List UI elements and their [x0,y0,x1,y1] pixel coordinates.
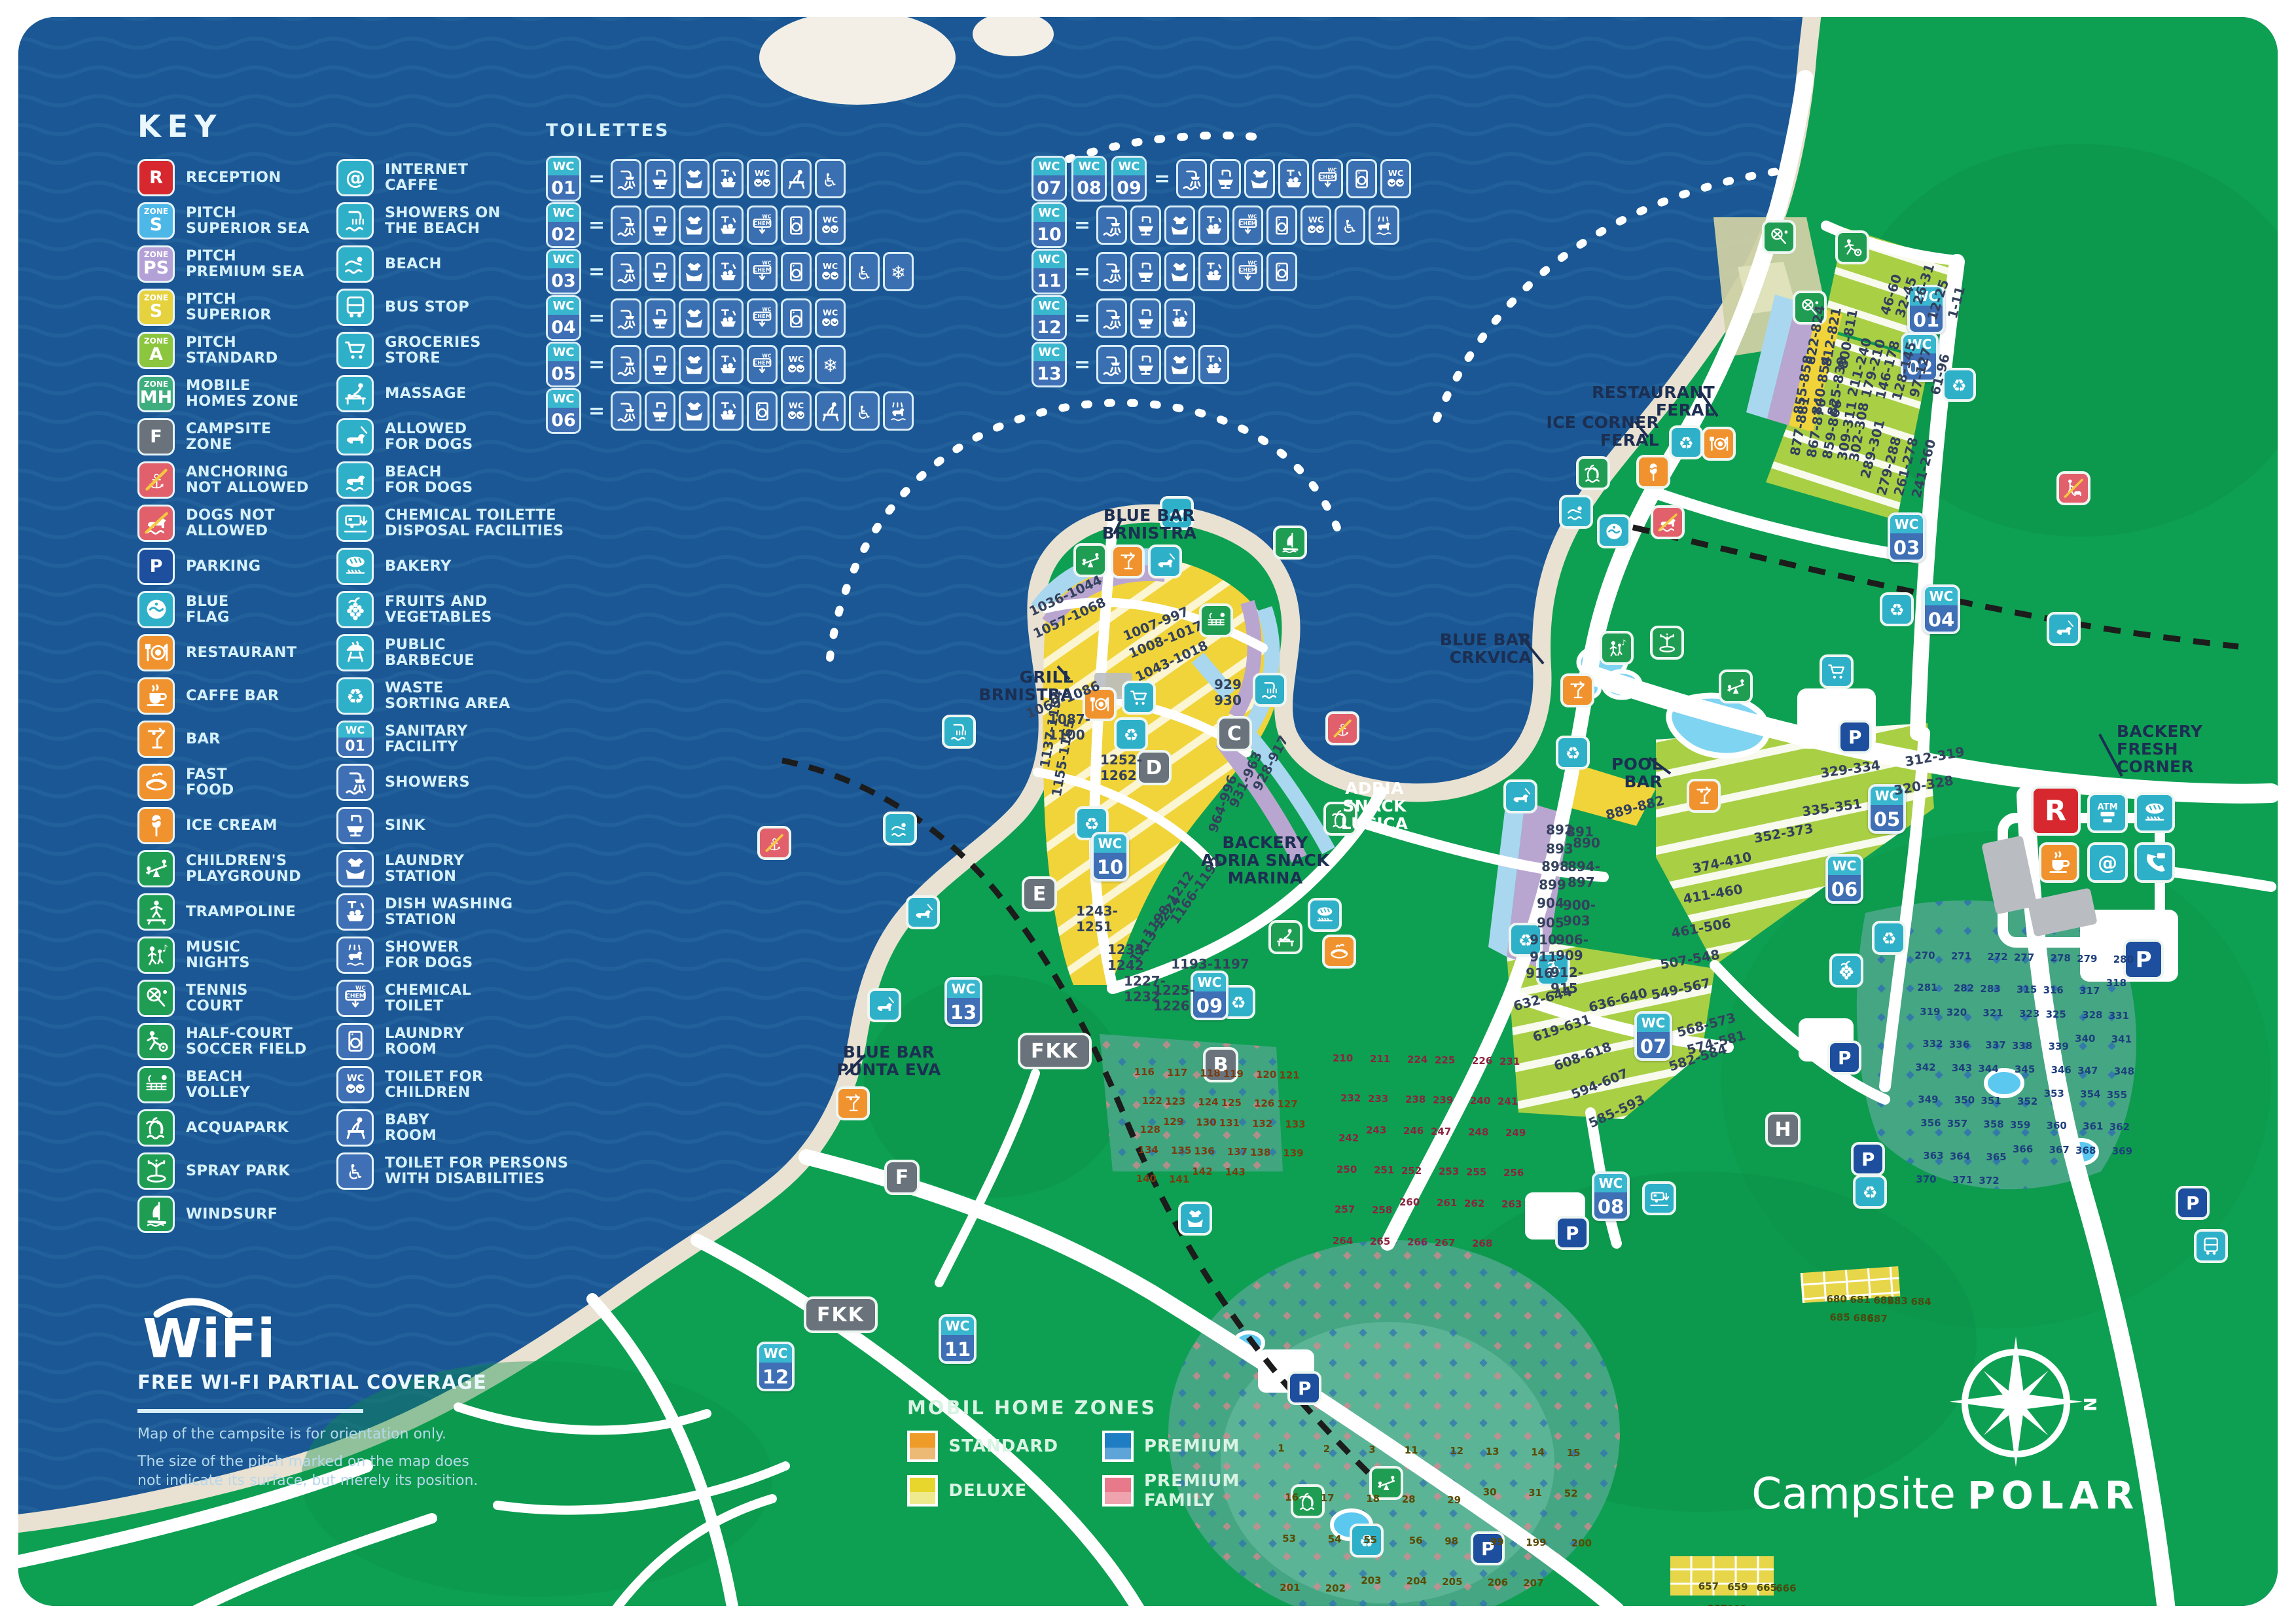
key-item: CHEMICALTOILET [336,976,568,1020]
key-zone-badge: ZONEA [137,332,175,369]
mh-pitch-number: 120 [1256,1069,1276,1080]
key-zone-badge: ZONEMH [137,375,175,412]
mh-legend-heading: MOBIL HOME ZONES [907,1397,1312,1419]
laundry-icon [1168,353,1192,377]
map-badge-ATM [2087,793,2128,833]
key-item: MASSAGE [336,372,568,415]
dog-icon [1154,550,1176,573]
mh-pitch-number: 323 [2019,1008,2039,1020]
fastfood-icon [1328,940,1350,963]
chem-icon [1236,213,1260,238]
facility-wckids [815,205,846,245]
mh-pitch-number: 321 [1982,1007,2003,1019]
key-item: RESTAURANT [137,631,310,674]
sink-icon [1134,306,1158,330]
chem-icon [1316,167,1340,191]
key-item-label: ANCHORINGNOT ALLOWED [186,464,309,496]
key-item-label: LAUNDRYSTATION [385,853,464,885]
chemdisposal-icon [1648,1187,1670,1209]
map-badge-volley [1199,603,1233,637]
mh-pitch-number: 320 [1946,1007,1967,1018]
mh-pitch-number: 262 [1464,1198,1484,1209]
map-area-label: POOLBAR [1611,755,1662,791]
sink-icon [648,167,672,191]
mh-pitch-number: 318 [2106,977,2126,989]
facility-dishwash [1198,345,1229,384]
mh-legend-item: PREMIUM FAMILY [1102,1471,1312,1510]
map-badge-bus [2194,1229,2228,1263]
key-item-label: BEACH [385,256,442,272]
key-item: CHEMICAL TOILETTEDISPOSAL FACILITIES [336,501,568,544]
toilettes-row: WC03= [546,249,917,294]
mh-pitch-number: 138 [1250,1147,1270,1158]
map-badge-cart [1820,654,1854,688]
mh-pitch-number: 346 [2051,1064,2072,1076]
mh-pitch-number: 352 [2017,1096,2037,1107]
shower-icon [614,353,638,377]
spray-icon [1656,632,1678,654]
P-icon [1561,1222,1583,1244]
laundry-icon [682,213,706,238]
laundry-icon [342,855,369,882]
toilettes-row: WC10= [1031,202,1403,248]
mh-pitch-number: 687 [1867,1313,1888,1325]
mh-pitch-number: 201 [1280,1582,1300,1594]
equals-sign: = [588,353,605,376]
facility-sink [645,345,675,384]
mh-pitch-number: 354 [2080,1088,2100,1100]
bakery-icon [2141,799,2168,827]
mh-pitch-number: 355 [2107,1089,2127,1101]
mh-pitch-number: 264 [1333,1235,1353,1247]
key-item: SPRAY PARK [137,1149,310,1192]
mh-pitch-number: 676 [1774,1605,1795,1606]
facility-laundry [1164,205,1195,245]
wckids-icon [750,167,774,191]
mh-pitch-number: 316 [2043,984,2064,996]
facility-wheelchair [1335,205,1365,245]
key-icon-box [336,1109,374,1147]
pitch-range-label: 1243-1251 [1076,903,1118,935]
facility-dogshower [883,391,914,431]
facility-shower [1096,345,1127,384]
shower-icon [1179,167,1204,191]
facility-snow [883,252,914,291]
chemdisposal-icon [342,509,369,537]
key-icon-box [137,893,175,931]
map-badge-acquapark [1576,456,1610,490]
mh-pitch-number: 683 [1888,1295,1908,1307]
massage-icon [342,380,369,407]
mh-pitch-number: 139 [1283,1147,1303,1159]
waste-icon [1081,812,1103,834]
key-item-label: BAR [186,731,221,747]
key-item: LAUNDRYSTATION [336,847,568,890]
key-icon-box [336,936,374,974]
map-wc-07: WC07 [1634,1011,1672,1061]
mh-pitch-number: 351 [1981,1095,2001,1107]
pitch-range-label: 352-373 [1753,820,1815,846]
equals-sign: = [588,307,605,330]
snow-icon [818,353,842,377]
P-icon [1857,1148,1879,1170]
key-item-label: CHEMICALTOILET [385,982,471,1014]
facility-sink [645,391,675,431]
facility-shower [611,252,641,291]
key-item-label: WASTESORTING AREA [385,680,511,712]
mh-pitch-number: 124 [1198,1096,1218,1108]
key-item: SHOWERS ONTHE BEACH [336,199,568,242]
key-item: ZONEPS PITCHPREMIUM SEA [137,242,310,285]
beachshower-icon [1259,679,1281,701]
waste-icon [1886,598,1908,620]
map-badge-P [1851,1142,1885,1176]
mh-pitch-number: 125 [1221,1097,1242,1109]
map-badge-beachshower [1253,673,1287,707]
mh-pitch-number: 336 [1949,1039,1969,1050]
key-item: BLUEFLAG [137,588,310,631]
map-badge-coffee [2039,842,2079,883]
wheelchair-icon [1338,213,1362,238]
mh-pitch-number: 319 [1920,1006,1940,1018]
mh-pitch-number: 243 [1366,1124,1386,1136]
map-badge-P [1827,1041,1861,1075]
equals-sign: = [1074,307,1090,330]
facility-dishwash [713,345,744,384]
shower-icon [1100,353,1124,377]
pitch-range-label: 899 [1539,877,1566,893]
facility-wckids [1380,159,1411,198]
facility-wheelchair [815,159,846,198]
pitch-range-label: 893 [1546,841,1573,857]
mh-pitch-number: 143 [1225,1166,1246,1178]
key-item-label: SHOWERFOR DOGS [385,939,473,971]
pitch-range-label: 900-903 [1563,897,1596,929]
key-zone-badge: ZONEPS [137,245,175,283]
washer-icon [1270,260,1294,284]
wc-09-badge: WC09 [1111,156,1147,202]
mh-pitch-number: 12 [1450,1445,1463,1457]
facility-chem [747,298,778,338]
key-icon-box [137,850,175,887]
key-item-label: BLUEFLAG [186,594,230,626]
wc-12-badge: WC12 [1031,295,1067,341]
wheelchair-icon [818,167,842,191]
mh-pitch-number: 258 [1372,1204,1392,1216]
title-polari: POLARI [1967,1473,2160,1518]
facility-shower [611,298,641,338]
key-item-label: SPRAY PARK [186,1163,290,1179]
key-item-label: PARKING [186,558,260,574]
mh-pitch-number: 340 [2075,1033,2095,1044]
key-item-label: RECEPTION [186,169,281,185]
mh-pitch-number: 357 [1947,1118,1967,1130]
facility-chem [1232,252,1263,291]
acquapark-icon [1582,462,1604,484]
key-item: PUBLICBARBECUE [336,631,568,674]
facility-snow [815,345,846,384]
equals-sign: = [1154,168,1170,190]
mh-pitch-number: 363 [1923,1150,1943,1162]
mh-pitch-number: 338 [2012,1040,2032,1052]
facility-dishwash [713,205,744,245]
map-badge-swimmer [1559,495,1593,529]
map-badge-bakery [2134,793,2175,833]
map-badge-waste [1556,736,1590,770]
P-icon [2130,946,2157,973]
key-item: R RECEPTION [137,156,310,199]
baby-icon [784,167,808,191]
mh-pitch-number: 681 [1850,1294,1871,1306]
map-badge-massage [1268,920,1302,954]
key-item: ZONEA PITCHSTANDARD [137,329,310,372]
facility-laundry [679,159,709,198]
facility-sink [645,205,675,245]
mh-pitch-number: 325 [2046,1008,2066,1020]
key-icon-box [336,245,374,283]
key-item-label: CAMPSITEZONE [186,421,272,453]
washer-icon [750,399,774,423]
P-icon [2181,1192,2204,1214]
map-badge-waste [1872,921,1906,955]
key-icon-box [137,764,175,801]
waste-icon [1878,927,1900,949]
campsite-map-poster: { "title": {"campsite": "Campsite", "nam… [0,0,2296,1623]
key-item-label: INTERNETCAFFE [385,162,468,194]
facility-washer [781,205,812,245]
wifi-coverage-line: FREE WI-FI PARTIAL COVERAGE [137,1371,487,1393]
mh-pitch-number: 267 [1435,1237,1455,1249]
chem-icon [750,260,774,284]
facility-laundry [1164,345,1195,384]
windsurf-icon [1279,531,1301,554]
mobil-home-zones-legend: MOBIL HOME ZONES STANDARD PREMIUM DELUXE… [907,1397,1312,1520]
shower-icon [1100,306,1124,330]
key-item: DISH WASHINGSTATION [336,890,568,933]
mh-pitch-number: 360 [2047,1120,2067,1132]
key-zone-badge: R [137,159,175,196]
wckids-icon [818,306,842,330]
key-item: MUSICNIGHTS [137,933,310,976]
key-heading: KEY [137,109,223,144]
dog-icon [1509,785,1532,808]
chem-icon [750,353,774,377]
mh-pitch-number: 238 [1405,1094,1426,1105]
equals-sign: = [588,260,605,283]
key-item: WASTESORTING AREA [336,674,568,717]
icecream-icon [1642,461,1664,483]
sink-icon [648,353,672,377]
fruits-icon [1835,959,1857,982]
mh-pitch-number: 2 [1323,1443,1330,1455]
key-column-1: R RECEPTIONZONES PITCHSUPERIOR SEAZONEPS… [137,156,310,1236]
mh-pitch-number: 28 [1402,1493,1416,1505]
facility-sink [645,252,675,291]
mh-pitch-number: 134 [1138,1144,1158,1156]
map-badge-waste [1669,425,1703,459]
nodog-icon [2062,477,2085,499]
mh-pitch-number: 206 [1488,1577,1508,1588]
pitch-range-label: 608-618 [1552,1039,1613,1074]
mh-pitch-number: 242 [1338,1132,1359,1144]
facility-baby [781,159,812,198]
key-item: TENNISCOURT [137,976,310,1020]
washer-icon [784,213,808,238]
mh-pitch-number: 240 [1470,1095,1490,1107]
key-item: ANCHORINGNOT ALLOWED [137,458,310,501]
mh-pitch-number: 685 [1830,1311,1850,1323]
mh-pitch-number: 99 [1490,1536,1504,1548]
bus-icon [342,293,369,321]
icecream-icon [143,811,170,839]
restaurant-icon [1708,433,1730,455]
facility-shower [611,205,641,245]
key-icon-box [336,375,374,412]
key-icon-box [336,850,374,887]
sink-icon [648,306,672,330]
mh-pitch-number: 14 [1531,1446,1545,1458]
map-badge-cocktail [836,1086,870,1120]
map-badge-windsurf [1273,526,1307,560]
key-icon-box [137,677,175,715]
chem-icon [342,984,369,1012]
mh-pitch-number: 668 [1726,1603,1746,1606]
wc-13-badge: WC13 [1031,342,1067,387]
key-item: CAFFE BAR [137,674,310,717]
key-icon-box [336,505,374,542]
mh-pitch-number: 123 [1165,1096,1185,1107]
facility-dishwash [713,391,744,431]
key-item: ZONES PITCHSUPERIOR SEA [137,199,310,242]
washer-icon [342,1027,369,1055]
facility-wckids [781,391,812,431]
mh-pitch-number: 131 [1219,1117,1240,1129]
mh-pitch-number: 339 [2049,1041,2069,1052]
key-item: TRAMPOLINE [137,890,310,933]
sink-icon [648,260,672,284]
key-item-label: BEACHVOLLEY [186,1069,250,1101]
toilettes-row: WC06= [546,388,917,434]
cocktail-icon [1117,550,1139,573]
dishwash-icon [716,399,740,423]
map-badge-spray [1650,626,1684,660]
map-wc-10: WC10 [1091,832,1129,882]
pitch-range-label: 507-548 [1659,946,1721,972]
facility-wckids [1300,205,1331,245]
facility-washer [747,391,778,431]
washer-icon [784,306,808,330]
key-item-label: WINDSURF [186,1206,278,1222]
wckids-icon [1304,213,1328,238]
massage-icon [1274,926,1297,948]
key-item: ACQUAPARK [137,1106,310,1149]
key-item: WINDSURF [137,1192,310,1236]
pitch-range-label: 894-897 [1568,859,1600,890]
dog-icon [2053,618,2075,640]
pitch-range-label: 904 [1537,895,1564,911]
mh-legend-item: STANDARD [907,1431,1097,1462]
mh-pitch-number: 265 [1370,1236,1390,1247]
equals-sign: = [1074,214,1090,237]
swimmer-icon [889,817,911,840]
mh-pitch-number: 255 [1466,1166,1486,1178]
playground-icon [1079,549,1102,571]
mh-pitch-number: 130 [1196,1116,1216,1128]
mh-pitch-number: 315 [2017,984,2037,995]
waste-icon [1120,723,1142,745]
key-item-label: BAKERY [385,558,452,574]
key-item-label: ICE CREAM [186,817,278,833]
compass-rose: N [1950,1331,2101,1475]
mh-pitch-number: 675 [1755,1604,1776,1606]
map-badge-bakery [1308,898,1342,932]
map-badge-waste [1114,717,1148,751]
facility-laundry [1164,252,1195,291]
facility-sink [1210,159,1241,198]
mh-pitch-number: 137 [1227,1146,1247,1158]
waste-icon [1948,374,1970,396]
facility-shower [611,345,641,384]
key-item-label: TOILET FOR PERSONSWITH DISABILITIES [385,1155,568,1187]
washer-icon [1270,213,1294,238]
map-badge-tennis [1762,220,1796,254]
facility-chem [1232,205,1263,245]
facility-shower [611,159,641,198]
zone-letter-E: E [1022,876,1057,912]
mh-pitch-number: 126 [1254,1097,1274,1109]
playground-icon [1375,1472,1397,1494]
mh-pitch-number: 132 [1252,1118,1272,1130]
key-item-label: TRAMPOLINE [186,904,296,919]
mh-pitch-number: 253 [1439,1166,1459,1177]
laundry-icon [1168,213,1192,238]
facility-washer [1266,205,1297,245]
mh-pitch-number: 261 [1437,1197,1457,1209]
map-badge-noanchor [757,826,791,860]
mh-pitch-number: 337 [1985,1039,2005,1051]
key-icon-box [336,634,374,671]
key-icon-box [137,591,175,628]
title-campsite: Campsite [1751,1469,1956,1519]
mh-pitch-number: 281 [1917,982,1937,993]
key-item: GROCERIESSTORE [336,329,568,372]
pitch-range-label: 594-607 [1569,1065,1630,1103]
map-badge-dog [906,895,940,929]
key-zone-badge: ZONES [137,289,175,326]
mh-pitch-number: 15 [1567,1447,1581,1459]
toilettes-heading: TOILETTES [546,120,670,141]
mh-pitch-number: 18 [1366,1493,1380,1505]
mh-pitch-number: 247 [1431,1126,1451,1137]
trampoline-icon [143,898,170,925]
mh-pitch-number: 680 [1827,1293,1847,1305]
mh-pitch-number: 252 [1401,1165,1422,1177]
music-icon [143,941,170,969]
map-badge-beachshower [942,715,976,749]
key-item: BABYROOM [336,1106,568,1149]
key-item: CHILDREN'SPLAYGROUND [137,847,310,890]
laundry-icon [682,399,706,423]
facility-wckids [747,159,778,198]
mh-pitch-number: 266 [1407,1236,1427,1248]
mh-pitch-number: 116 [1134,1066,1155,1078]
wc-01-badge: WC01 [546,156,581,202]
map-badge-flag [1597,514,1631,548]
map-area-label: ADRIASNACKLUČICA [1341,779,1408,832]
map-badge-waste [1853,1175,1887,1209]
divider [137,1409,363,1413]
playground-icon [143,855,170,882]
